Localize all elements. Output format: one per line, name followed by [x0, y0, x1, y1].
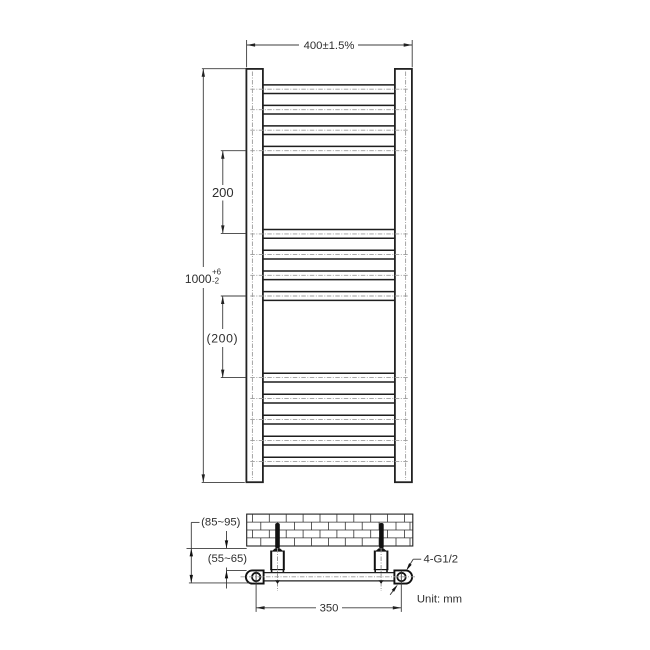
- svg-text:400±1.5%: 400±1.5%: [304, 40, 355, 52]
- svg-text:+6: +6: [212, 267, 222, 276]
- svg-text:(55~65): (55~65): [208, 553, 247, 565]
- svg-text:Unit: mm: Unit: mm: [417, 594, 462, 606]
- svg-text:(85~95): (85~95): [201, 517, 240, 529]
- svg-text:(200): (200): [207, 331, 239, 345]
- svg-text:-2: -2: [212, 276, 220, 285]
- svg-text:200: 200: [212, 185, 234, 200]
- svg-text:1000: 1000: [185, 272, 212, 286]
- svg-text:350: 350: [320, 603, 339, 615]
- svg-text:4-G1/2: 4-G1/2: [424, 553, 459, 565]
